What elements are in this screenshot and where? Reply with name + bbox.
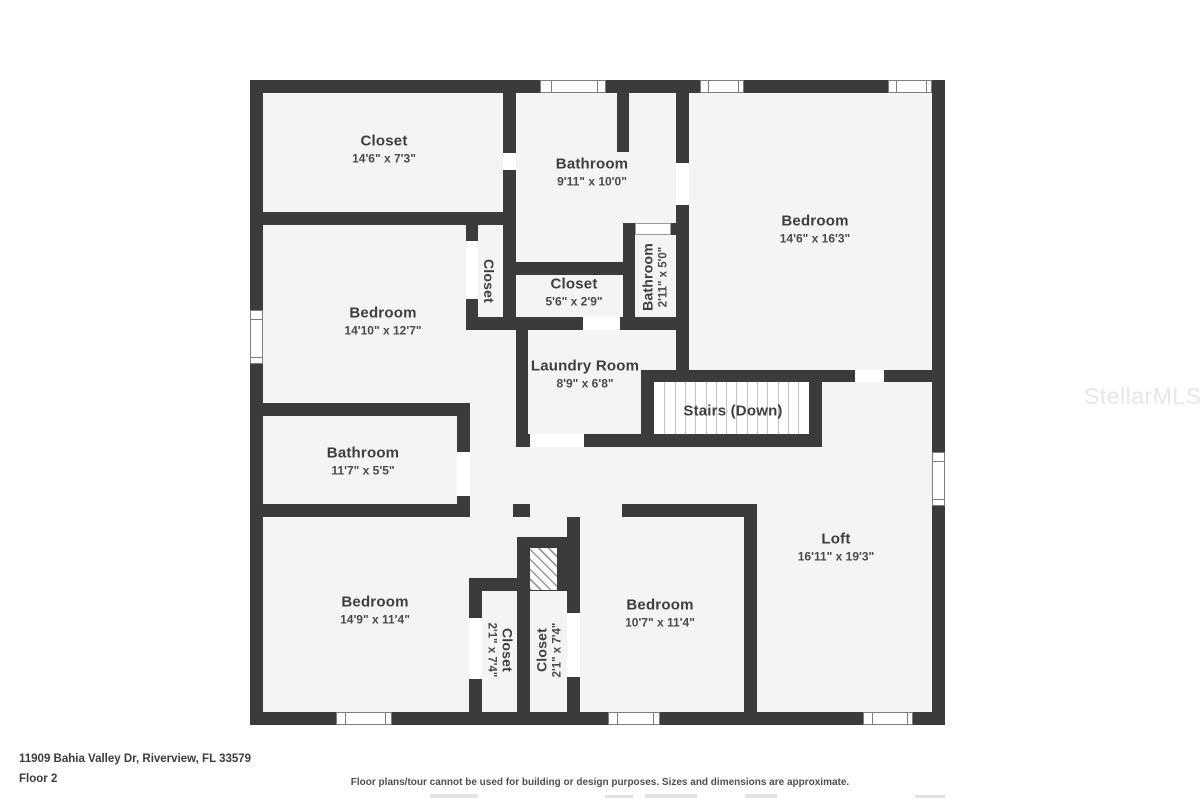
door-opening — [567, 613, 580, 677]
window-mullion — [896, 81, 897, 92]
room-dims: 2'1" x 7'4" — [483, 623, 498, 678]
window-mullion — [872, 713, 873, 724]
room-name: Closet — [532, 628, 550, 672]
wall — [503, 80, 516, 153]
wall — [622, 504, 757, 517]
wall — [469, 679, 482, 713]
disclaimer-text: Floor plans/tour cannot be used for buil… — [0, 777, 1200, 788]
room-dims: 10'7" x 11'4" — [625, 615, 695, 631]
window-mullion — [251, 357, 262, 358]
room-name: Bathroom — [327, 443, 399, 463]
room-label-laundry: Laundry Room 8'9" x 6'8" — [531, 356, 639, 391]
window-mullion — [926, 81, 927, 92]
room-dims: 16'11" x 19'3" — [798, 549, 874, 565]
wall — [513, 504, 530, 517]
door-opening — [855, 370, 884, 382]
room-label-bathroom-top: Bathroom 9'11" x 10'0" — [556, 154, 628, 189]
wall — [641, 370, 855, 382]
room-name: Closet — [550, 274, 597, 294]
room-name: Bathroom — [638, 243, 656, 311]
wall — [516, 330, 528, 447]
door-opening — [503, 153, 516, 170]
wall — [517, 537, 530, 713]
wall — [503, 275, 516, 317]
window-mullion — [345, 713, 346, 724]
room-dims: 14'6" x 7'3" — [352, 151, 416, 167]
room-dims: 8'9" x 6'8" — [556, 376, 613, 392]
window-mullion — [617, 713, 618, 724]
stellar-mls-watermark: StellarMLS — [1084, 383, 1200, 410]
wall — [250, 403, 470, 416]
wall — [809, 382, 822, 447]
cutoff-text-fragment — [605, 795, 633, 798]
room-label-bedroom-top-right: Bedroom 14'6" x 16'3" — [780, 211, 850, 246]
wall — [457, 403, 470, 452]
room-label-bathroom-mid-left: Bathroom 11'7" x 5'5" — [327, 443, 399, 478]
stair-tread — [675, 382, 676, 434]
room-name: Bedroom — [626, 595, 693, 615]
door-opening — [583, 317, 620, 330]
room-dims: 14'6" x 16'3" — [780, 231, 850, 247]
window-mullion — [251, 319, 262, 320]
window — [932, 452, 945, 506]
property-address: 11909 Bahia Valley Dr, Riverview, FL 335… — [19, 753, 251, 765]
room-label-closet-bottom-left: Closet 2'1" x 7'4" — [483, 623, 516, 678]
room-label-stairs: Stairs (Down) — [683, 401, 782, 421]
wall — [503, 170, 516, 262]
window — [863, 712, 913, 725]
room-dims: 5'6" x 2'9" — [545, 294, 602, 310]
wall — [503, 262, 635, 275]
cutoff-text-fragment — [430, 794, 478, 798]
wall — [932, 80, 945, 725]
cutoff-text-fragment — [745, 794, 777, 798]
room-label-bedroom-bottom-left: Bedroom 14'9" x 11'4" — [340, 592, 410, 627]
window-mullion — [907, 713, 908, 724]
window-mullion — [738, 81, 739, 92]
room-name: Stairs (Down) — [683, 401, 782, 421]
room-label-bedroom-bottom-mid: Bedroom 10'7" x 11'4" — [625, 595, 695, 630]
room-name: Closet — [498, 628, 516, 672]
cutoff-text-fragment — [645, 794, 697, 798]
window-mullion — [933, 499, 944, 500]
room-label-closet-center: Closet 5'6" x 2'9" — [545, 274, 602, 309]
room-name: Bedroom — [349, 303, 416, 323]
wall — [567, 517, 580, 613]
wall — [671, 223, 689, 235]
room-name: Loft — [821, 529, 850, 549]
wall — [617, 80, 629, 152]
window-mullion — [551, 81, 552, 92]
window — [540, 80, 606, 93]
room-dims: 2'11" x 5'0" — [657, 247, 672, 308]
room-dims: 14'9" x 11'4" — [340, 612, 410, 628]
window-mullion — [385, 713, 386, 724]
room-name: Closet — [480, 259, 498, 303]
stair-tread — [798, 382, 799, 434]
room-label-closet-top: Closet 14'6" x 7'3" — [352, 131, 416, 166]
room-label-closet-hall: Closet — [480, 259, 498, 303]
room-dims: 14'10" x 12'7" — [344, 323, 421, 339]
room-name: Bathroom — [556, 154, 628, 174]
room-name: Bedroom — [781, 211, 848, 231]
room-dims: 11'7" x 5'5" — [331, 463, 394, 479]
wall — [584, 434, 822, 447]
wall — [623, 223, 635, 330]
wall — [466, 317, 583, 330]
stair-tread — [664, 382, 665, 434]
door-opening — [466, 241, 478, 299]
hatched-shaft — [530, 548, 557, 590]
wall — [744, 504, 757, 712]
window-mullion — [708, 81, 709, 92]
wall — [250, 504, 470, 517]
room-name: Bedroom — [341, 592, 408, 612]
room-label-bathroom-small: Bathroom 2'11" x 5'0" — [638, 243, 671, 311]
room-label-loft: Loft 16'11" x 19'3" — [798, 529, 874, 564]
window — [336, 712, 392, 725]
floor-plan-page: Closet 14'6" x 7'3" Bathroom 9'11" x 10'… — [0, 0, 1200, 800]
room-name: Closet — [360, 131, 407, 151]
wall — [676, 80, 689, 163]
stair-tread — [788, 382, 789, 434]
door-opening — [676, 163, 689, 205]
door-opening — [469, 618, 482, 679]
room-dims: 2'1" x 7'4" — [551, 623, 566, 678]
room-dims: 9'11" x 10'0" — [557, 174, 627, 190]
cutoff-text-fragment — [915, 795, 945, 798]
room-label-bedroom-mid-left: Bedroom 14'10" x 12'7" — [344, 303, 421, 338]
wall — [516, 434, 530, 447]
wall — [250, 212, 516, 225]
window-mullion — [933, 461, 944, 462]
window — [250, 310, 263, 364]
window — [700, 80, 744, 93]
window-mullion — [653, 713, 654, 724]
door-opening — [635, 223, 671, 235]
window — [888, 80, 932, 93]
door-opening — [457, 452, 470, 496]
room-label-closet-bottom-right: Closet 2'1" x 7'4" — [532, 623, 565, 678]
window — [608, 712, 660, 725]
wall — [884, 370, 932, 382]
door-opening — [530, 434, 584, 447]
window-mullion — [597, 81, 598, 92]
wall — [469, 578, 580, 591]
wall — [567, 677, 580, 713]
room-name: Laundry Room — [531, 356, 639, 376]
wall — [466, 225, 478, 241]
